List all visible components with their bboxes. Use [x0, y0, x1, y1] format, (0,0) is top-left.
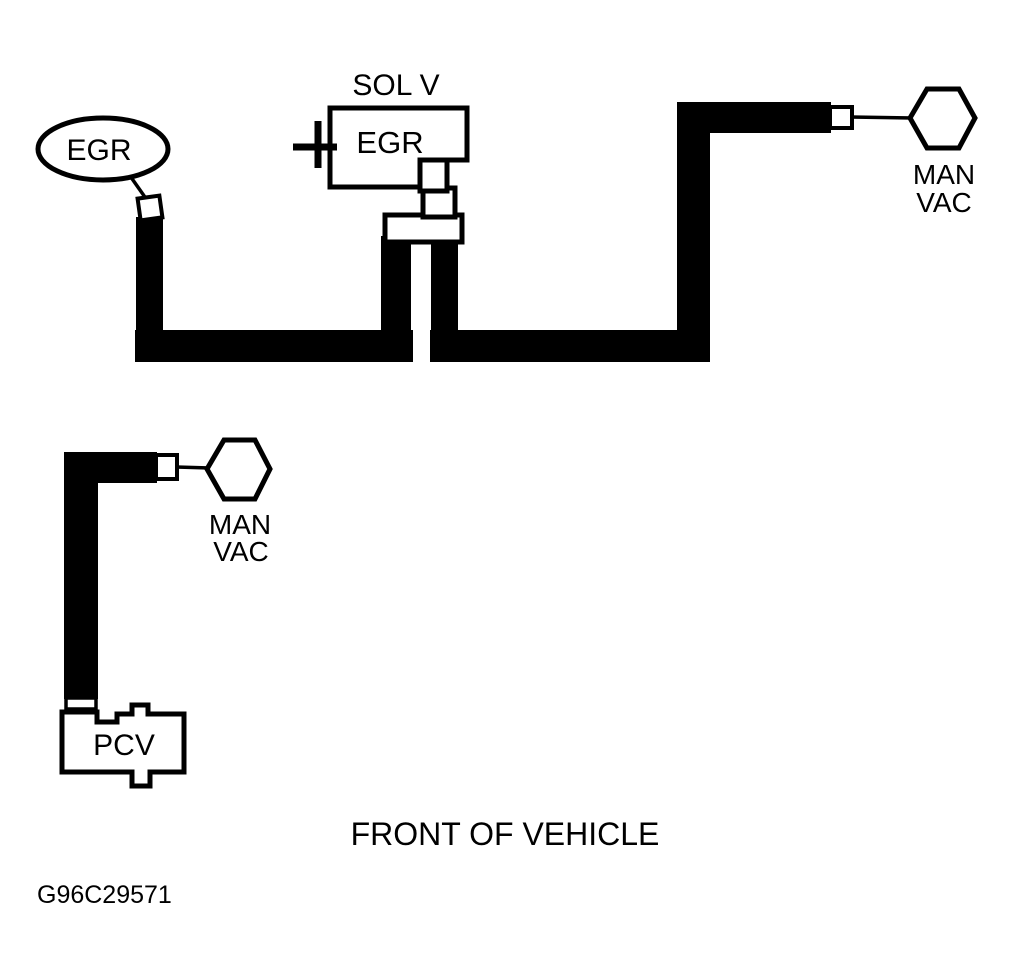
hose-riser-right: [677, 102, 710, 362]
solenoid-label: EGR: [356, 125, 423, 160]
front-of-vehicle-caption: FRONT OF VEHICLE: [351, 816, 660, 852]
solenoid-right-port-hose: [431, 236, 458, 336]
man-vac-lower-connector: [156, 455, 177, 479]
solenoid-title: SOL V: [352, 69, 439, 102]
hose-circuit-man-vac: [430, 102, 831, 362]
man-vac-lower-hexagon-icon: [207, 440, 270, 499]
pcv-hose-vertical: [64, 452, 98, 699]
vacuum-hose-routing-diagram: EGR SOL V EGR MAN VAC MAN VAC: [0, 0, 1014, 977]
figure-id: G96C29571: [37, 881, 172, 909]
pcv-hose-connector-band: [66, 698, 96, 709]
pcv-valve-label: PCV: [93, 729, 155, 762]
hose-circuit-egr: [135, 217, 413, 362]
man-vac-upper-line: [850, 117, 913, 118]
egr-solenoid: SOL V EGR: [293, 69, 467, 242]
man-vac-lower-label-line2: VAC: [213, 536, 269, 567]
man-vac-upper-label-line1: MAN: [913, 159, 975, 190]
hose-circuit-pcv: [64, 452, 157, 699]
man-vac-upper: MAN VAC: [830, 89, 975, 218]
hose-run-left: [135, 330, 413, 362]
egr-valve: EGR: [38, 118, 168, 220]
solenoid-left-port-hose: [381, 236, 411, 362]
vacuum-diagram-page: EGR SOL V EGR MAN VAC MAN VAC: [0, 0, 1014, 977]
solenoid-port-stem: [420, 158, 447, 191]
egr-hose-connector: [138, 196, 163, 221]
hose-run-top: [677, 102, 831, 133]
man-vac-upper-hexagon-icon: [910, 89, 975, 148]
egr-valve-label: EGR: [66, 134, 131, 167]
man-vac-upper-label-line2: VAC: [916, 187, 972, 218]
man-vac-lower: MAN VAC: [156, 440, 271, 567]
hose-run-right: [430, 330, 710, 362]
man-vac-upper-connector: [830, 107, 852, 128]
pcv-valve: PCV: [62, 698, 184, 786]
